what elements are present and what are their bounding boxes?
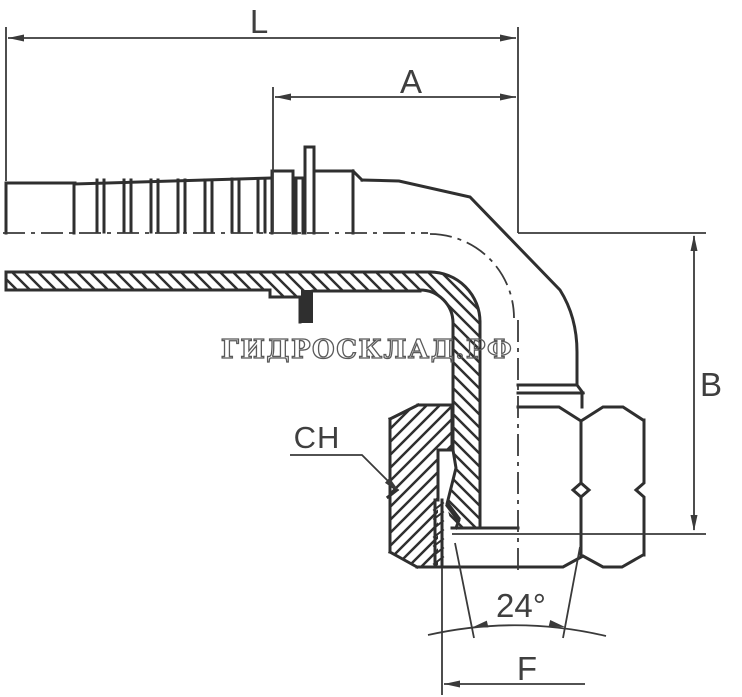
body-section-outline [6,272,518,528]
shank-barb [6,178,270,233]
watermark-text: ГИДРОСКЛАД.РФ [221,335,513,365]
dimension-L: L [6,3,518,233]
hose-stop-collars [272,147,362,233]
callout-CH: CH [290,420,399,491]
dim-label-B: B [700,366,722,403]
dim-label-L: L [250,3,268,40]
technical-drawing: L A B F 24° CH ГИДРОСКЛАД.РФ [0,0,742,697]
drawing-canvas: L A B F 24° CH ГИДРОСКЛАД.РФ [0,0,742,697]
dim-label-A: A [400,63,422,100]
dim-label-F: F [517,650,537,687]
dim-label-angle: 24° [496,587,546,624]
dim-label-CH: CH [294,420,341,455]
